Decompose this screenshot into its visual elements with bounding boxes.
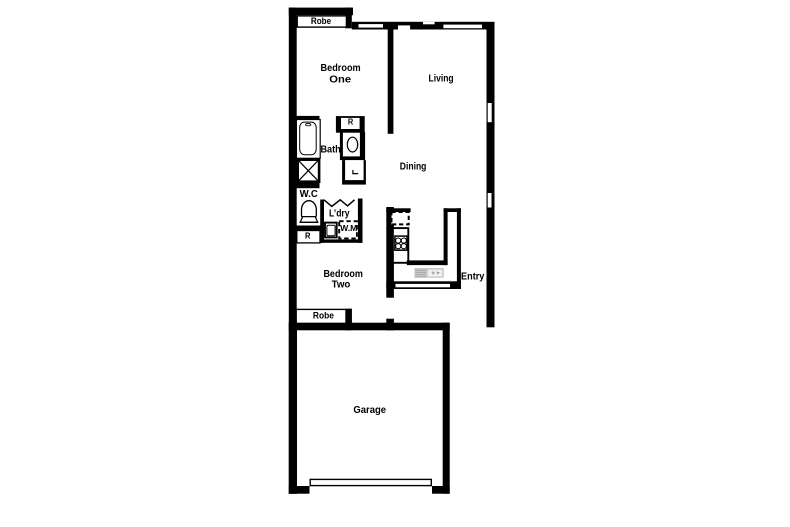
- svg-text:One: One: [329, 74, 351, 86]
- svg-text:R: R: [348, 118, 354, 127]
- svg-text:W.M: W.M: [340, 224, 357, 233]
- svg-text:Living: Living: [429, 72, 454, 84]
- svg-text:W.C: W.C: [300, 189, 319, 200]
- svg-text:Garage: Garage: [353, 404, 386, 416]
- svg-text:Bedroom: Bedroom: [321, 62, 361, 74]
- svg-text:R: R: [305, 231, 311, 241]
- svg-text:L’dry: L’dry: [329, 209, 350, 220]
- svg-text:Entry: Entry: [461, 271, 484, 283]
- svg-text:Robe: Robe: [311, 16, 331, 27]
- svg-text:Dining: Dining: [400, 161, 427, 173]
- svg-text:Robe: Robe: [313, 310, 334, 321]
- svg-text:Two: Two: [332, 279, 351, 291]
- svg-text:Bath: Bath: [320, 144, 340, 155]
